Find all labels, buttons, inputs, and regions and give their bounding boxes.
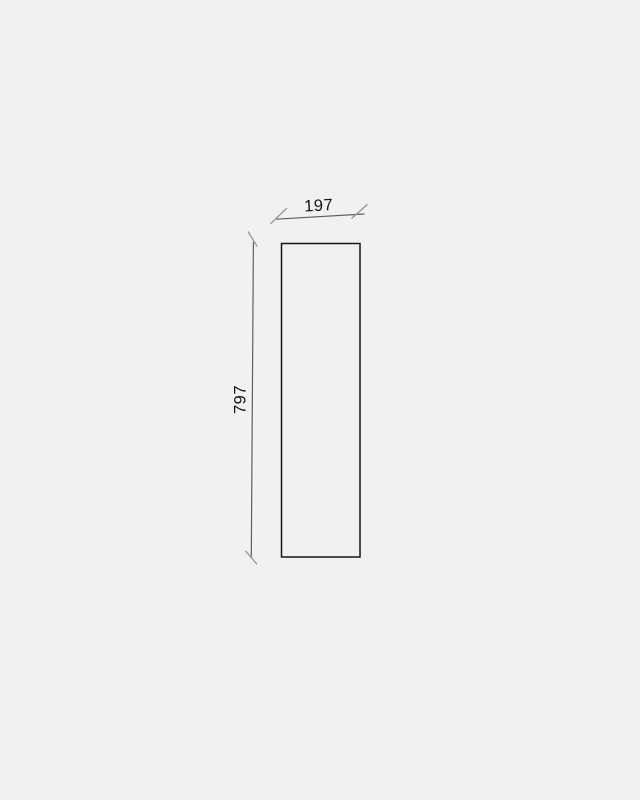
- width-dimension-tick-left: [271, 208, 288, 224]
- width-dimension-line: [276, 214, 365, 219]
- dimension-drawing: 197 797: [0, 0, 640, 800]
- height-dimension: 797: [232, 232, 258, 565]
- width-dimension-tick-right: [352, 204, 368, 218]
- height-dimension-label: 797: [232, 385, 250, 414]
- width-dimension-label: 197: [304, 196, 334, 216]
- height-dimension-line: [251, 242, 253, 557]
- height-dimension-tick-top: [248, 232, 257, 247]
- drawing-canvas: 197 797: [0, 0, 640, 800]
- panel-outline-rect: [282, 244, 361, 558]
- width-dimension: 197: [271, 196, 368, 224]
